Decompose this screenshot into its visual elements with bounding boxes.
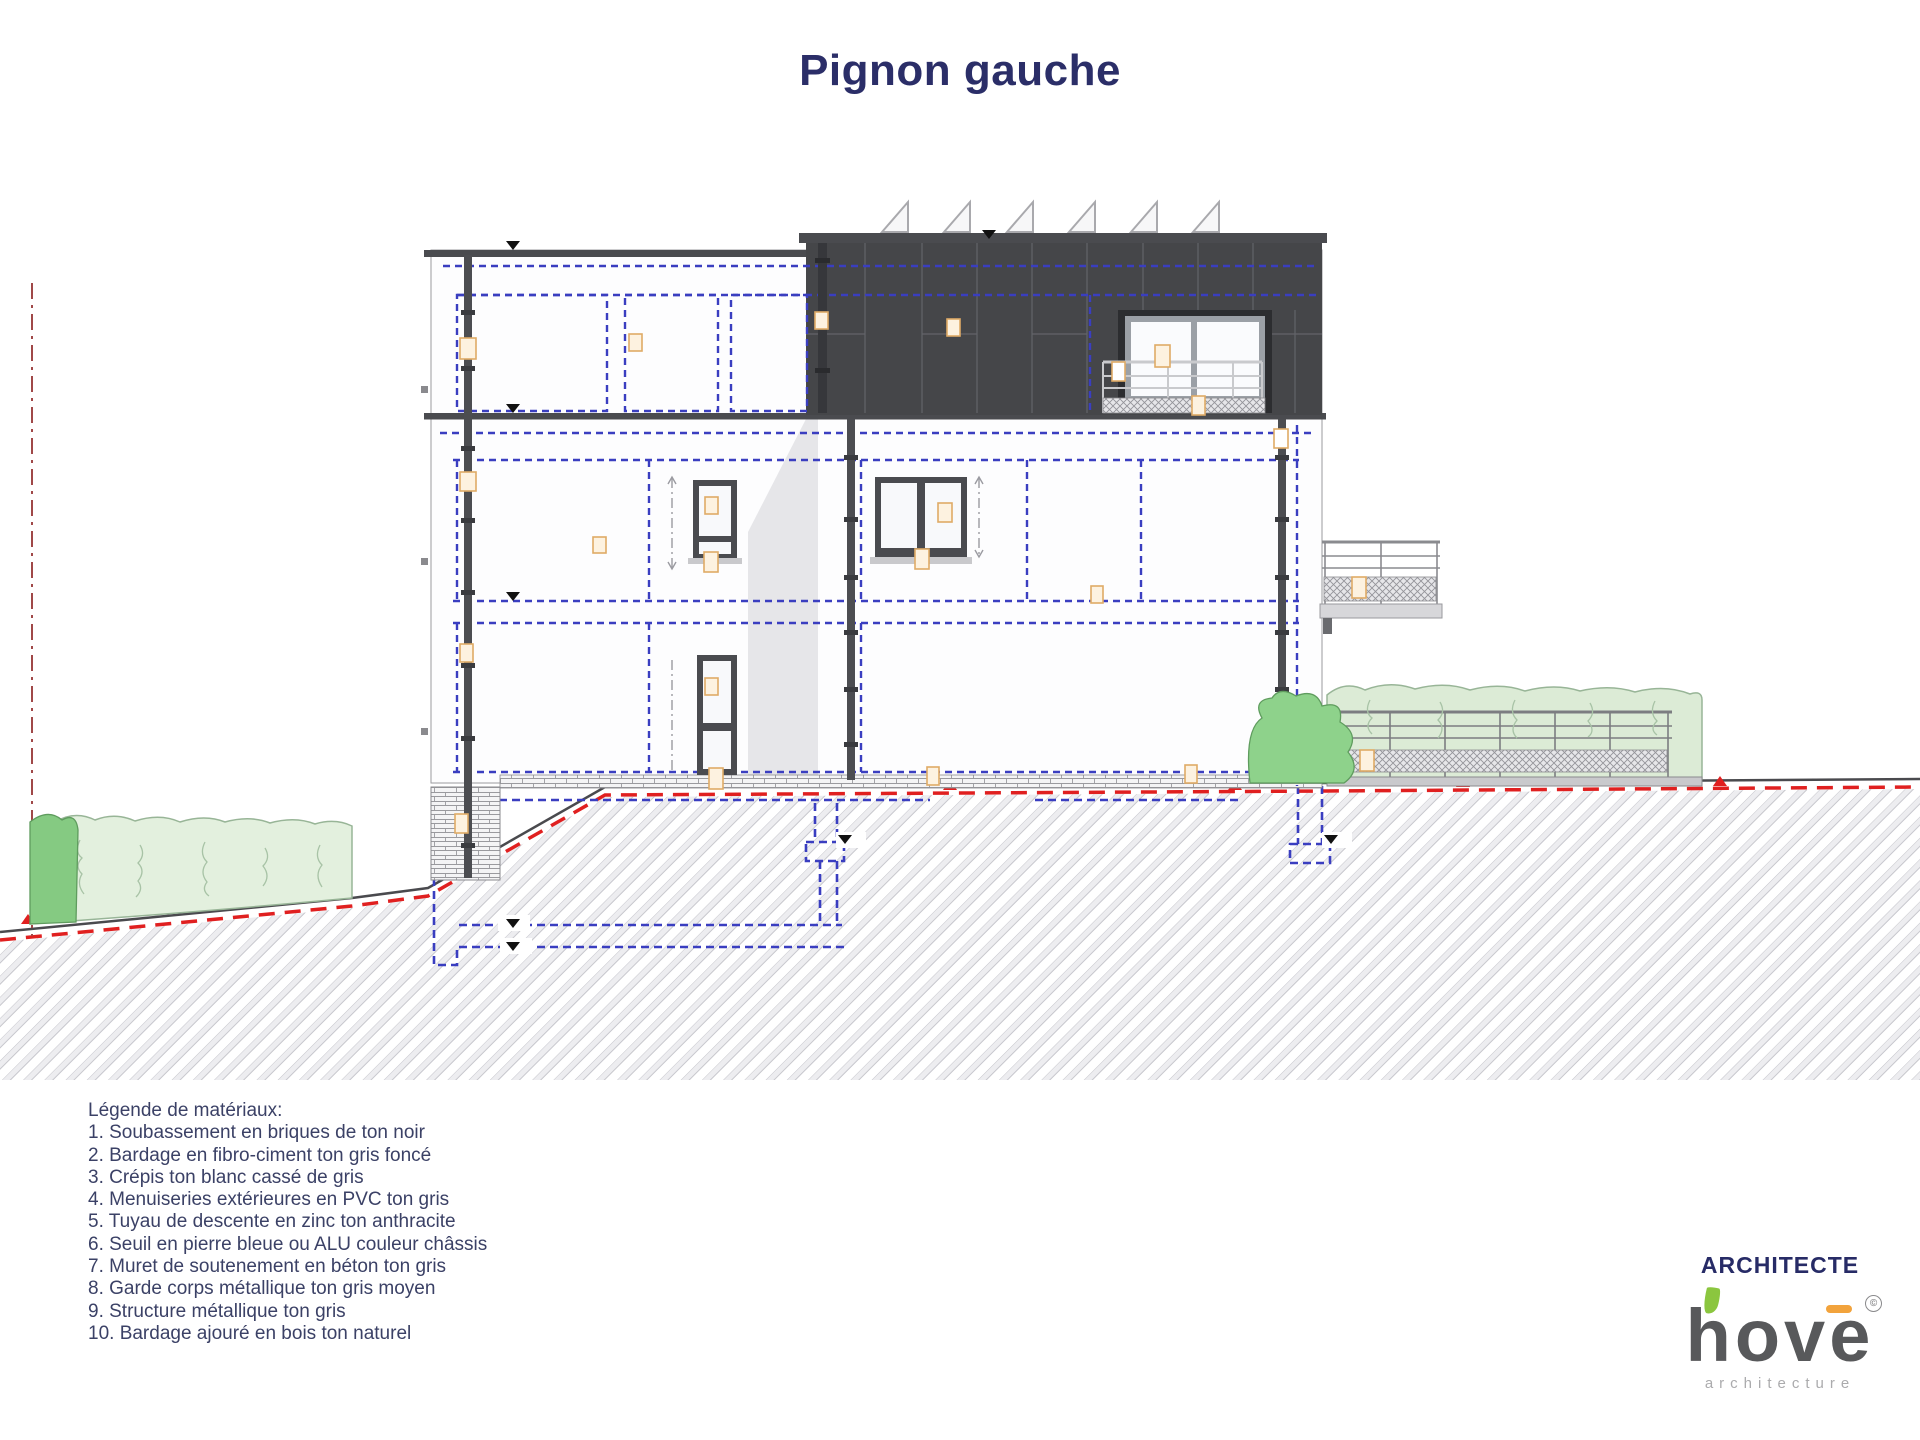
- balcony-mesh-panel: [1324, 577, 1436, 601]
- roof-anchor-icons: [882, 202, 1219, 232]
- mid-balcony: [1320, 542, 1442, 634]
- building: [421, 202, 1327, 880]
- architect-label: ARCHITECTE: [1660, 1252, 1900, 1279]
- legend-header: Légende de matériaux:: [88, 1100, 568, 1122]
- logo-macron-icon: [1826, 1305, 1852, 1313]
- edge-ticks: [421, 386, 428, 735]
- terrace-mesh-strip: [1333, 750, 1667, 772]
- legend-item-6: 6. Seuil en pierre bleue ou ALU couleur …: [88, 1234, 568, 1256]
- dark-box-roof-cap: [799, 233, 1327, 243]
- legend-item-7: 7. Muret de soutenement en béton ton gri…: [88, 1256, 568, 1278]
- elevation-sheet: Pignon gauche: [0, 0, 1920, 1440]
- roof-terrace: [1103, 310, 1272, 413]
- legend-item-9: 9. Structure métallique ton gris: [88, 1301, 568, 1323]
- legend-item-10: 10. Bardage ajouré en bois ton naturel: [88, 1323, 568, 1345]
- balcony-slab: [1320, 604, 1442, 618]
- legend-item-5: 5. Tuyau de descente en zinc ton anthrac…: [88, 1211, 568, 1233]
- terrace-mesh-panel: [1103, 398, 1265, 413]
- balcony-bracket: [1323, 618, 1332, 634]
- copyright-icon: ©: [1865, 1295, 1882, 1312]
- parapet-cap: [424, 250, 806, 257]
- legend-item-3: 3. Crépis ton blanc cassé de gris: [88, 1167, 568, 1189]
- left-bush: [30, 814, 78, 924]
- legend-item-8: 8. Garde corps métallique ton gris moyen: [88, 1278, 568, 1300]
- legend-item-4: 4. Menuiseries extérieures en PVC ton gr…: [88, 1189, 568, 1211]
- legend-item-2: 2. Bardage en fibro-ciment ton gris fonc…: [88, 1145, 568, 1167]
- balcony-tag: [1352, 577, 1366, 598]
- brick-plinth-strip: [500, 775, 1322, 788]
- materials-legend: Légende de matériaux: 1. Soubassement en…: [88, 1100, 568, 1345]
- legend-item-1: 1. Soubassement en briques de ton noir: [88, 1122, 568, 1144]
- terrace-window: [1125, 316, 1265, 402]
- right-terrace: [1249, 685, 1703, 786]
- hove-logo: hove ©: [1660, 1293, 1900, 1379]
- retaining-wall-cap: [1327, 777, 1702, 786]
- terrace-tag: [1360, 750, 1374, 771]
- entrance-door: [697, 655, 737, 775]
- left-hedge: [30, 814, 352, 924]
- architect-branding: ARCHITECTE hove © architecture: [1660, 1252, 1900, 1392]
